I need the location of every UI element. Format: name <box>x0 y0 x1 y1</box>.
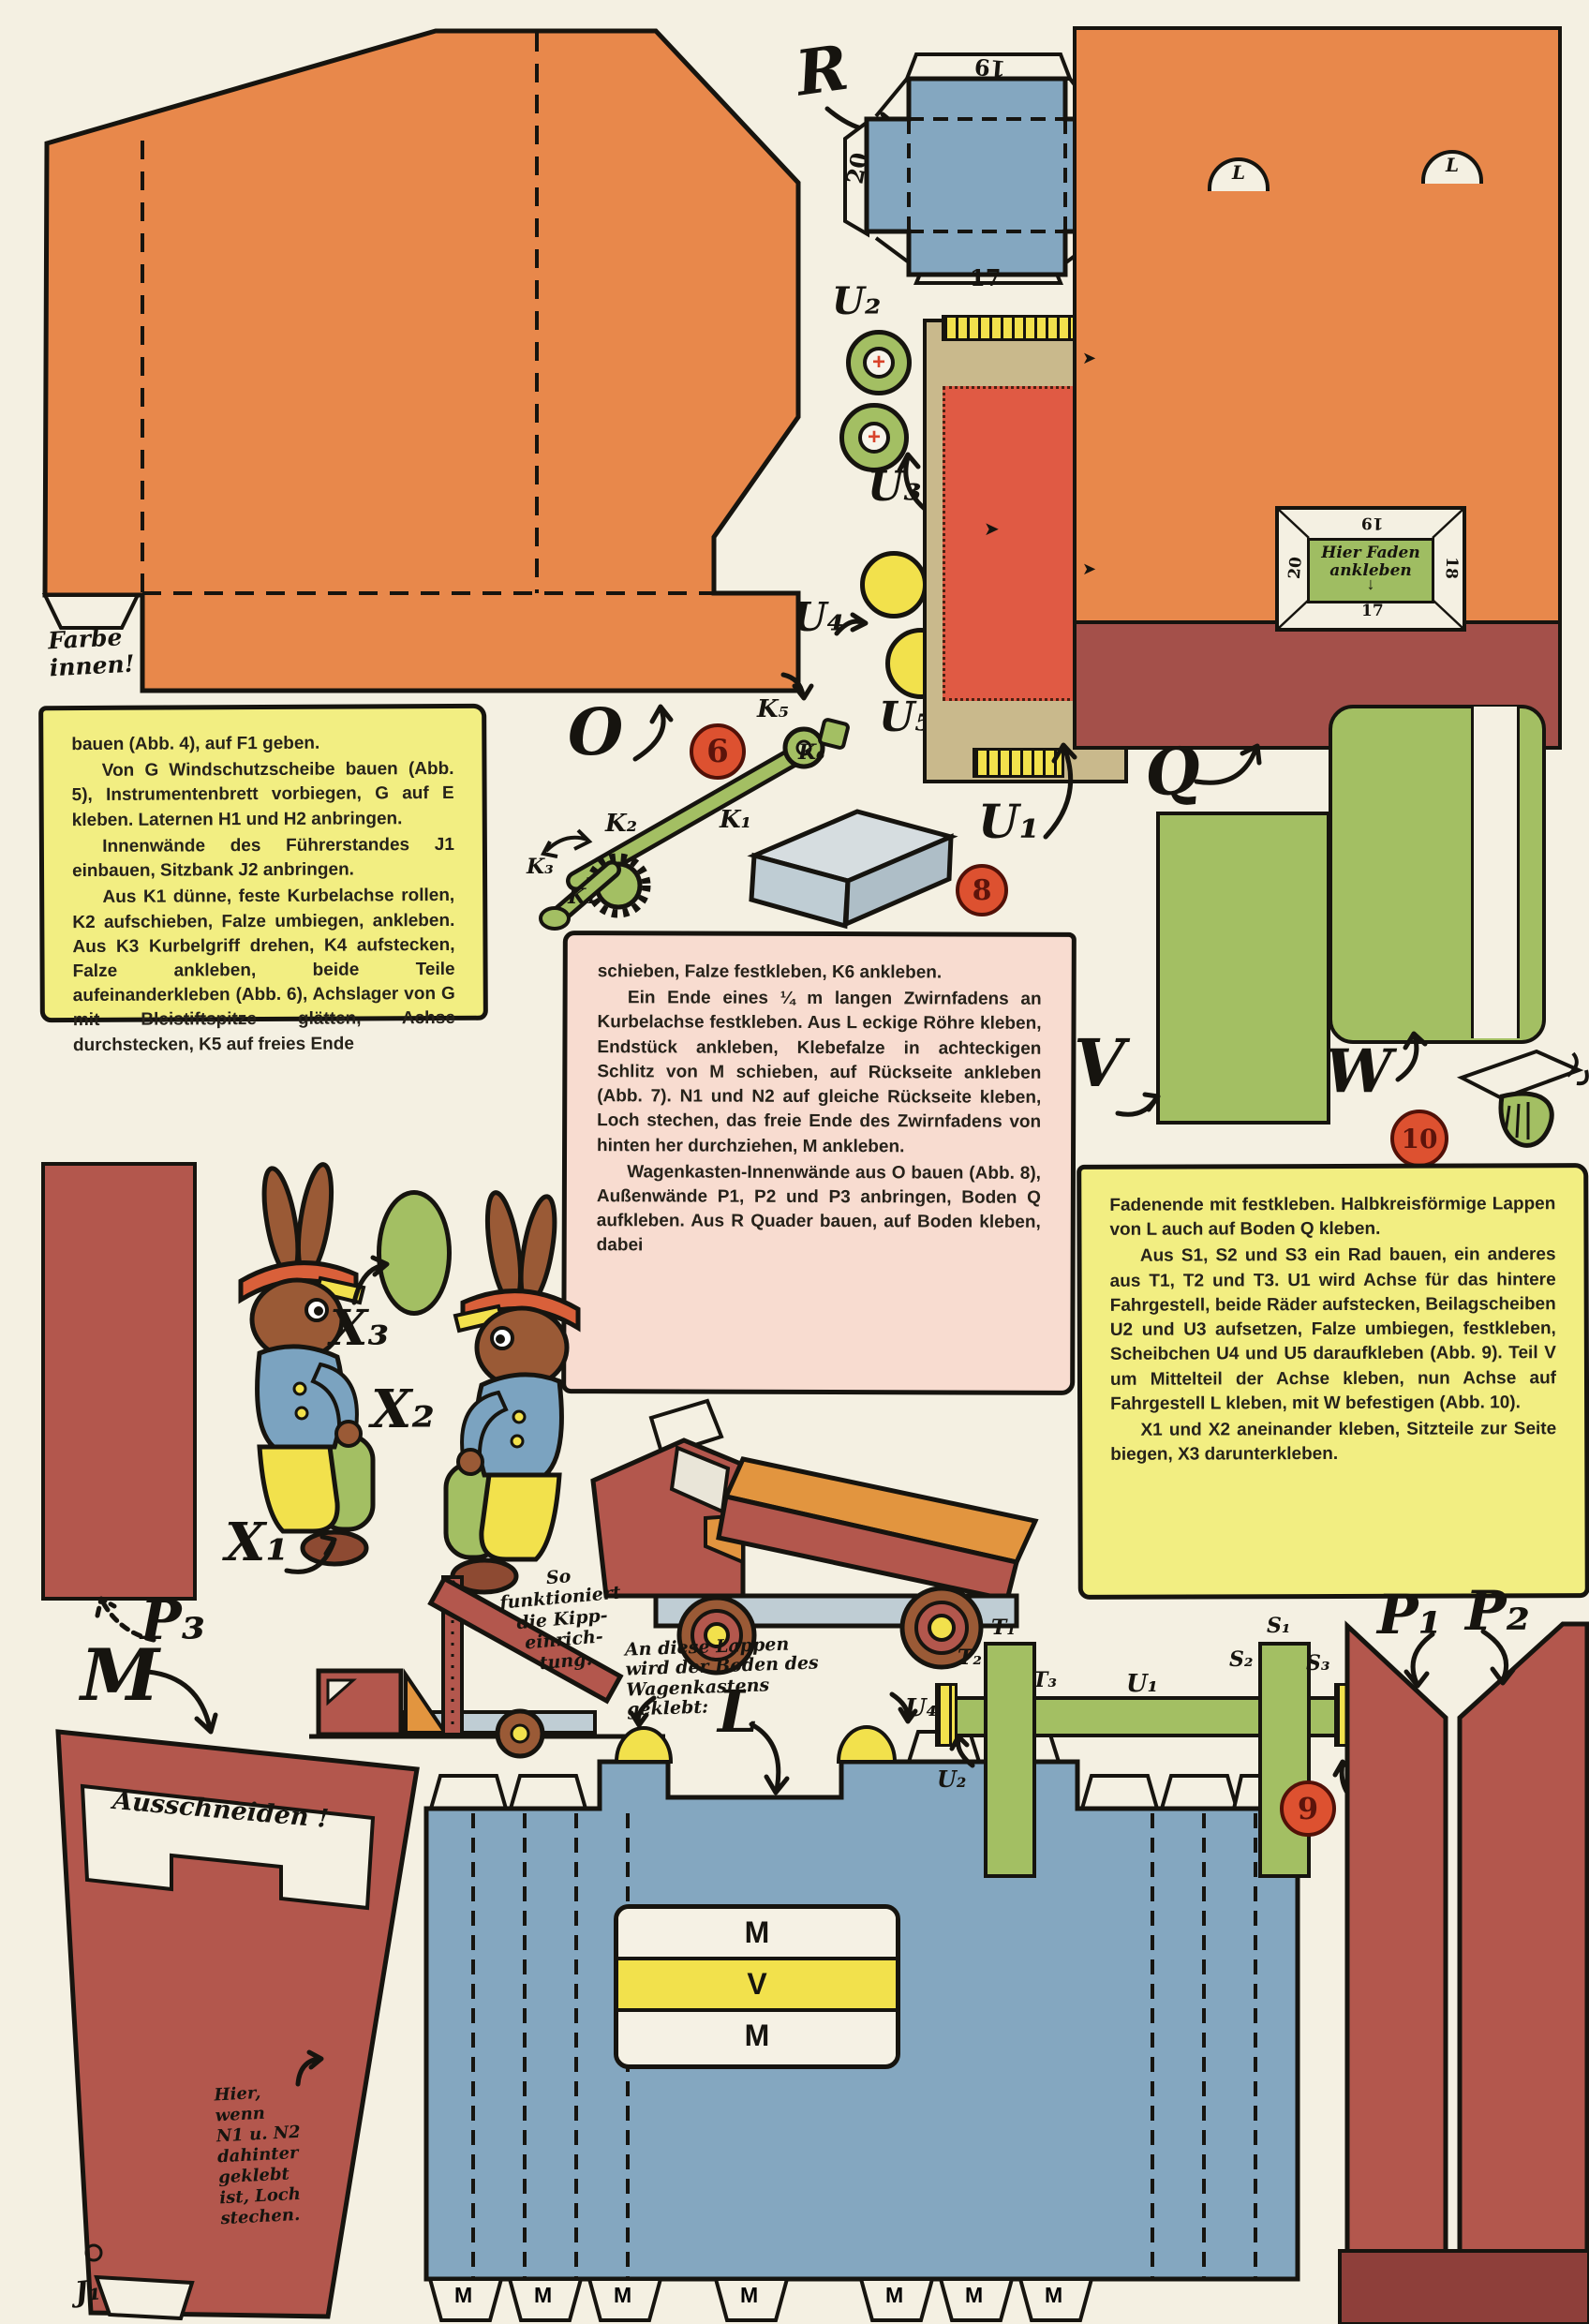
figure-axle-saddle <box>1448 1038 1588 1174</box>
pieces-p1-p2 <box>1335 1593 1589 2324</box>
m-tab-3: M <box>614 2283 631 2308</box>
piece-u1-fringe-top <box>942 315 1083 341</box>
badge-10-number: 10 <box>1402 1124 1438 1155</box>
arrow-p2 <box>1476 1626 1518 1691</box>
figure-tube-box <box>740 795 960 940</box>
l-flap-mark-left: L <box>1232 161 1245 184</box>
m-tab-5: M <box>885 2283 903 2308</box>
arrow-x3 <box>347 1256 398 1310</box>
instr-right-p1: Fadenende mit festkleben. Halbkreisförmi… <box>1109 1192 1555 1243</box>
fold-17-faden: 17 <box>1361 602 1384 620</box>
instr-left-p4: Aus K1 dünne, feste Kurbelachse rollen, … <box>72 884 455 1058</box>
instr-pink-p3: Wagenkasten-Innenwände aus O bauen (Abb.… <box>597 1160 1041 1260</box>
badge-8: 8 <box>956 864 1008 916</box>
label-k2: K₂ <box>605 810 637 838</box>
label-u2: U₂ <box>832 283 881 320</box>
l-flap-mark-right: L <box>1446 154 1459 176</box>
arrow-p1 <box>1401 1629 1443 1694</box>
arrow-u1 <box>1029 738 1085 843</box>
fold-17-r: 17 <box>970 264 1001 291</box>
m-tab-1: M <box>454 2283 472 2308</box>
instr-left-p3: Innenwände des Führerstandes J1 einbauen… <box>72 833 454 885</box>
papercraft-sheet: Farbe innen! R 19 20 18 17 U₂ + + U₃ U₄ <box>0 0 1589 2324</box>
window-v-text: V <box>747 1967 766 2002</box>
label-x1: X₁ <box>225 1516 289 1569</box>
label-x3: X₃ <box>330 1304 389 1353</box>
note-loch-stechen: Hier, wenn N1 u. N2 dahinter geklebt ist… <box>214 2079 343 2229</box>
fold-20-faden: 20 <box>1285 556 1306 579</box>
piece-q-arrow-left-bottom: ➤ <box>1082 559 1096 579</box>
note-farbe-innen: Farbe innen! <box>48 624 136 682</box>
piece-q-orange: L L ➤ ➤ Hier Faden ankleben ↓ 19 20 18 1… <box>1073 26 1562 746</box>
window-band-v: V <box>618 1960 896 2012</box>
piece-p3-red <box>41 1162 197 1601</box>
label-u2-axle: U₂ <box>937 1765 966 1793</box>
m-tab-6: M <box>965 2283 983 2308</box>
label-j1: J₁ <box>73 2274 102 2310</box>
piece-w-white-stripe <box>1471 707 1520 1038</box>
badge-9: 9 <box>1280 1780 1336 1837</box>
piece-l-window: M V M <box>614 1904 900 2069</box>
axle-wheel-s <box>1258 1642 1311 1878</box>
badge-10: 10 <box>1390 1110 1448 1168</box>
instruction-box-pink: schieben, Falze festkleben, K6 ankleben.… <box>561 931 1077 1395</box>
arrow-q <box>1192 737 1271 795</box>
faden-marker-green: Hier Faden ankleben ↓ <box>1307 538 1434 603</box>
fold-18-faden: 18 <box>1441 557 1461 579</box>
m-tab-2: M <box>534 2283 552 2308</box>
washer-u3-cross: + <box>868 426 881 449</box>
fold-20-r: 20 <box>841 151 873 186</box>
label-k5: K₅ <box>757 695 789 723</box>
label-k3: K₃ <box>527 855 554 879</box>
badge-8-number: 8 <box>973 874 992 907</box>
washer-u2-cross: + <box>872 351 885 374</box>
window-m-top-text: M <box>745 1915 770 1950</box>
label-k6: K₆ <box>798 740 825 765</box>
instr-right-p3: X1 und X2 aneinander kleben, Sitzteile z… <box>1110 1417 1556 1467</box>
m-tab-4: M <box>740 2283 758 2308</box>
instr-pink-p2: Ein Ende eines ¼ m langen Zwirnfadens an… <box>597 986 1042 1159</box>
instr-pink-p1: schieben, Falze festkleben, K6 ankleben. <box>598 960 1042 986</box>
label-t3: T₃ <box>1032 1668 1057 1692</box>
piece-q-arrow-left-top: ➤ <box>1082 349 1096 368</box>
instr-right-p2: Aus S1, S2 und S3 ein Rad bauen, ein and… <box>1109 1244 1556 1417</box>
instruction-box-right: Fadenende mit festkleben. Halbkreisförmi… <box>1077 1163 1589 1600</box>
disc-u4 <box>860 551 928 618</box>
label-t1: T₁ <box>991 1616 1016 1640</box>
fold-19-r: 19 <box>973 53 1007 83</box>
arrow-u2-axle <box>948 1732 981 1769</box>
label-t2: T₂ <box>958 1646 982 1670</box>
label-s2: S₂ <box>1229 1647 1254 1672</box>
washer-u2: + <box>846 330 912 395</box>
arrow-loch <box>290 2050 330 2090</box>
label-w: W <box>1325 1042 1392 1102</box>
label-u1-axle: U₁ <box>1126 1670 1158 1698</box>
note-lappen: An diese Lappen wird der Boden des Wagen… <box>625 1630 928 1720</box>
badge-9-number: 9 <box>1298 1791 1318 1826</box>
label-x2: X₂ <box>371 1383 435 1436</box>
label-s1: S₁ <box>1267 1614 1291 1638</box>
piece-q-l-flap-left: L <box>1208 157 1270 191</box>
arrow-w <box>1389 1027 1431 1085</box>
instruction-box-left: bauen (Abb. 4), auf F1 geben. Von G Wind… <box>38 704 488 1022</box>
piece-w-green <box>1329 705 1546 1044</box>
label-k4: K₄ <box>568 885 595 909</box>
arrow-lappen-left <box>630 1694 658 1732</box>
label-s3: S₃ <box>1306 1651 1330 1676</box>
window-m-bottom-text: M <box>745 2019 770 2053</box>
label-u3: U₃ <box>868 467 922 508</box>
piece-o-orange <box>37 23 806 703</box>
fold-19-faden: 19 <box>1361 514 1384 533</box>
instr-left-p2: Von G Windschutzscheibe bauen (Abb. 5), … <box>71 757 453 833</box>
arrow-l <box>740 1717 798 1803</box>
window-band-m-bottom: M <box>618 2012 896 2060</box>
label-u4-axle: U₄ <box>905 1694 937 1722</box>
piece-u1-fold-mark: ➤ <box>984 517 1000 541</box>
m-tab-7: M <box>1045 2283 1062 2308</box>
axle-wheel-t <box>984 1642 1036 1878</box>
instr-left-p1: bauen (Abb. 4), auf F1 geben. <box>71 731 453 757</box>
piece-q-l-flap-right: L <box>1421 150 1483 184</box>
faden-marker-box: Hier Faden ankleben ↓ 19 20 18 17 <box>1275 506 1466 632</box>
arrow-v <box>1113 1080 1165 1122</box>
window-band-m-top: M <box>618 1909 896 1960</box>
piece-v-green <box>1156 812 1330 1125</box>
arrow-u4 <box>832 611 869 639</box>
faden-down-arrow: ↓ <box>1310 579 1432 589</box>
